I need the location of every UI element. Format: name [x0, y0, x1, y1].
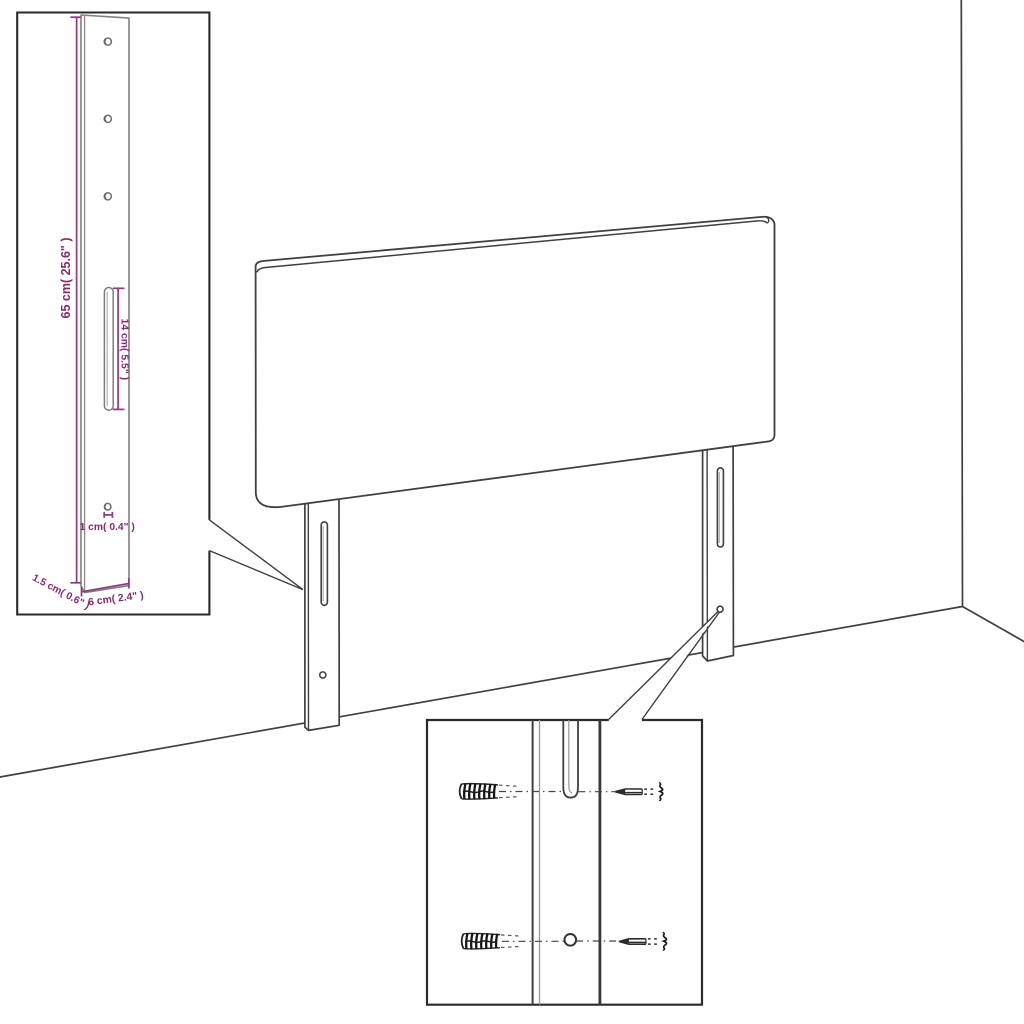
- svg-text:14 cm( 5.5" ): 14 cm( 5.5" ): [119, 319, 130, 381]
- svg-text:65 cm( 25.6" ): 65 cm( 25.6" ): [59, 238, 73, 319]
- svg-text:1 cm( 0.4" ): 1 cm( 0.4" ): [80, 522, 135, 533]
